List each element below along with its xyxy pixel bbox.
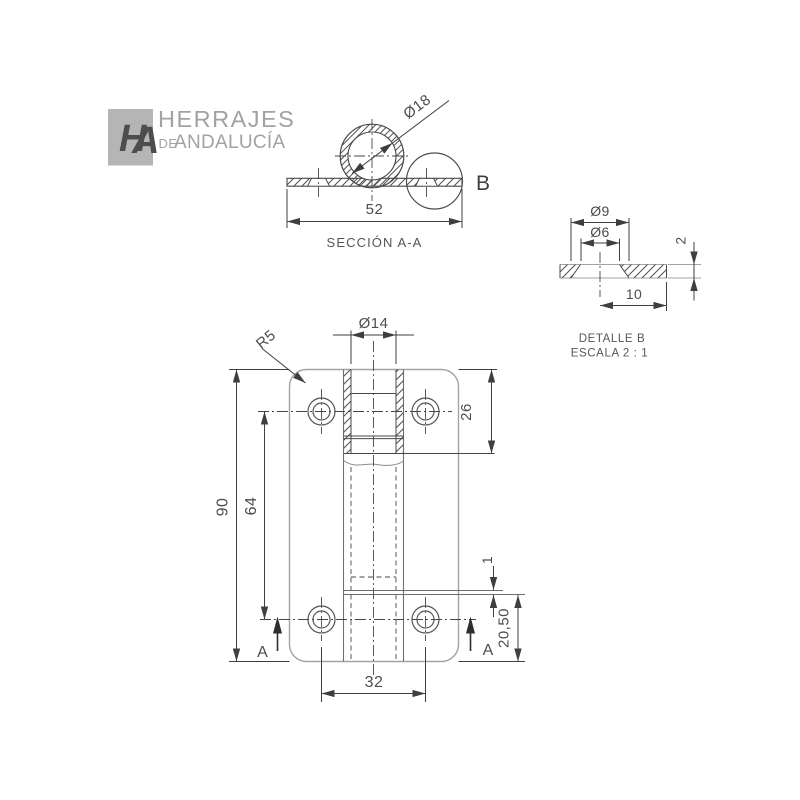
edge-extension-lines [229, 370, 525, 662]
dim-r5-text: R5 [253, 327, 279, 353]
dim-32-text: 32 [365, 674, 384, 691]
section-title: SECCIÓN A-A [327, 235, 423, 250]
dim-26-text: 26 [458, 403, 475, 421]
detail-view-b: Ø9 Ø6 2 10 DETALLE B ESCALA 2 : 1 [560, 203, 701, 360]
dim-64-text: 64 [243, 497, 260, 516]
dim-thk-extensions [668, 265, 701, 279]
detail-b-letter: B [476, 172, 490, 195]
drawing-canvas: H A HERRAJES DE ANDALUCÍA B Ø18 52 SECCI… [0, 0, 800, 800]
detail-scale-note: ESCALA 2 : 1 [571, 348, 649, 360]
detail-title: DETALLE B [579, 333, 646, 345]
cut-label-left: A [257, 644, 268, 661]
plate-outline [290, 370, 459, 662]
technical-drawing-page: H A HERRAJES DE ANDALUCÍA B Ø18 52 SECCI… [0, 0, 800, 800]
section-view-a-a: B Ø18 52 SECCIÓN A-A [287, 91, 490, 250]
brand-name-line2: ANDALUCÍA [174, 132, 285, 153]
dim-knuckle-diameter-text: Ø18 [400, 91, 434, 123]
dim-1-text: 1 [479, 556, 495, 564]
detail-material-right [620, 265, 667, 279]
brand-logo: H A HERRAJES DE ANDALUCÍA [108, 106, 295, 166]
dim-2050-text: 20,50 [496, 608, 513, 648]
step-lines [344, 591, 526, 595]
dim-d6-text: Ø6 [590, 224, 609, 240]
brand-name-line1: HERRAJES [158, 106, 295, 132]
dim-thk-text: 2 [673, 236, 689, 244]
dim-w10-text: 10 [626, 286, 642, 302]
dim-width52-text: 52 [366, 201, 384, 218]
dim-d9-text: Ø9 [590, 203, 609, 219]
front-view: 90 64 26 Ø14 R5 1 20,50 32 A A [215, 315, 526, 702]
dim-d14-text: Ø14 [359, 315, 389, 332]
dim-r5-leader [262, 349, 306, 384]
dim-90-text: 90 [215, 498, 232, 517]
logo-monogram-a: A [131, 120, 159, 162]
cut-label-right: A [483, 642, 494, 659]
detail-material-left [560, 265, 581, 279]
